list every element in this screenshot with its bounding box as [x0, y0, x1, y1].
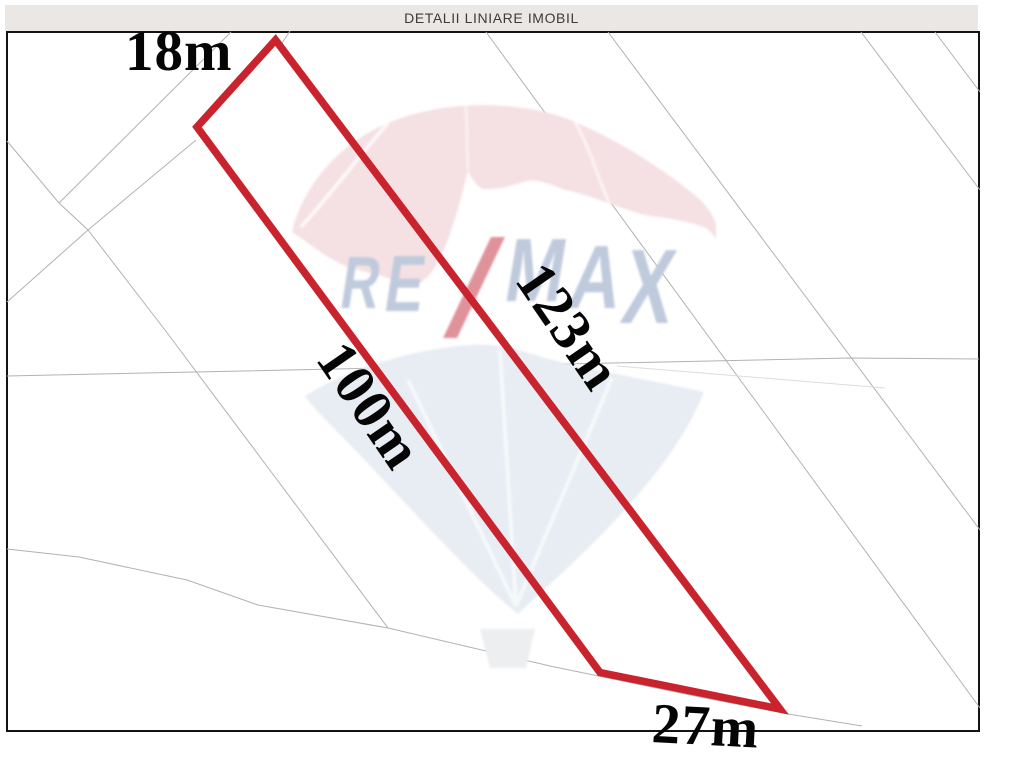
- svg-text:27m: 27m: [650, 692, 761, 761]
- svg-text:18m: 18m: [125, 20, 232, 83]
